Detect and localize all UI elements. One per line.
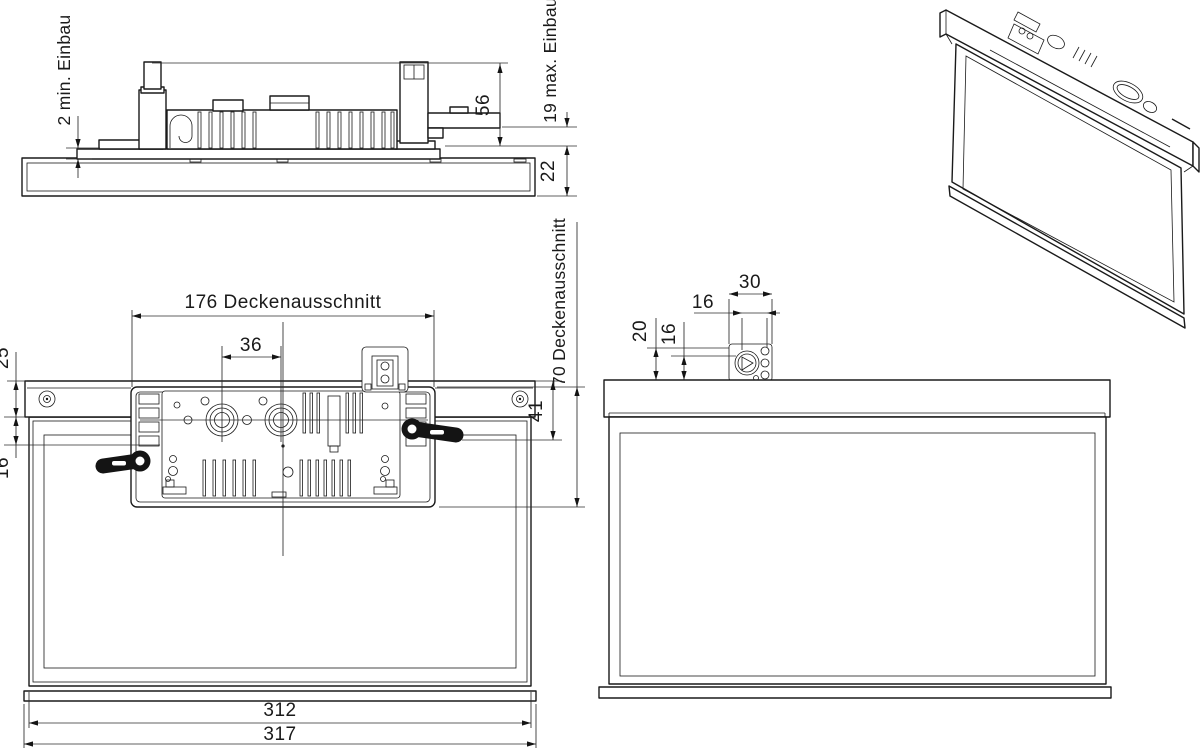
connector-detail [729, 344, 772, 381]
rear-plan-view: 176 Deckenausschnitt 36 25 16 41 70 Deck… [0, 218, 585, 748]
iso-heatsink-lines [1073, 47, 1097, 67]
iso-cylinder [1045, 32, 1067, 51]
dim-20-label: 20 [630, 320, 651, 342]
dim-41-label: 41 [526, 400, 547, 422]
dim-312-label: 312 [263, 700, 296, 721]
dim-min-einbau-label: 2 min. Einbau [54, 15, 74, 126]
dim-25-label: 25 [0, 347, 13, 369]
technical-drawing-page: 2 min. Einbau 56 19 max. Einbau 22 [0, 0, 1200, 749]
iso-pin [1172, 119, 1190, 129]
dim-max-einbau-label: 19 max. Einbau [540, 0, 560, 123]
dim-22-label: 22 [538, 160, 559, 182]
dim-cutout-width-label: 176 Deckenausschnitt [185, 292, 382, 313]
front-view: 30 16 20 16 [599, 272, 1111, 698]
dim-cutout-height-label: 70 Deckenausschnitt [549, 218, 569, 386]
dim-16-vertical-label: 16 [659, 323, 680, 345]
dim-16-left-label: 16 [0, 457, 13, 479]
dim-36-label: 36 [240, 335, 262, 356]
dim-16-horizontal-label: 16 [692, 292, 714, 313]
terminal-tab [362, 347, 408, 392]
dim-56-label: 56 [473, 94, 494, 116]
dim-30-label: 30 [739, 272, 761, 293]
technical-drawing-canvas: 2 min. Einbau 56 19 max. Einbau 22 [0, 0, 1200, 749]
side-section-view: 2 min. Einbau 56 19 max. Einbau 22 [22, 0, 577, 196]
dim-317-label: 317 [263, 724, 296, 745]
isometric-view [940, 10, 1199, 328]
